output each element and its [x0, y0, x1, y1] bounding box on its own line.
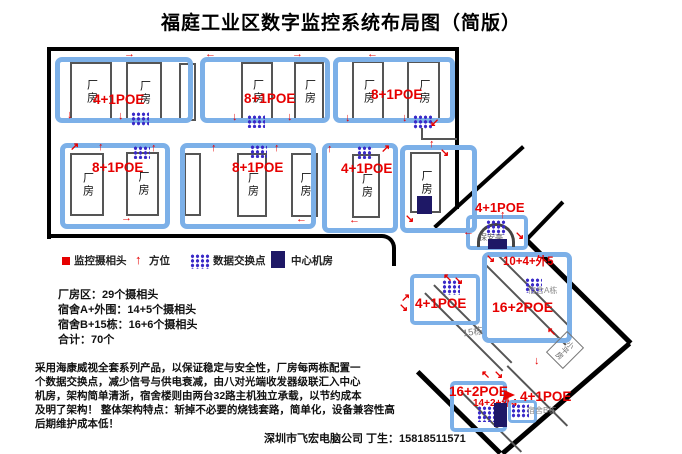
footer-contact: 深圳市飞宏电脑公司 丁生：15818511571 — [264, 430, 466, 446]
dorm-a-label: 宿舍A栋 — [528, 287, 557, 295]
center-room-icon — [494, 403, 507, 427]
direction-arrow-icon: ↑ — [151, 143, 157, 154]
direction-arrow-icon: ↑ — [500, 210, 506, 221]
direction-arrow-icon: ↘ — [494, 370, 503, 381]
small-house-label: 小平房 — [554, 339, 575, 360]
direction-arrow-icon: ↗ — [70, 142, 79, 153]
poe-label: 8+1POE — [92, 161, 143, 175]
description-line: 机房，架构简单清浙，宿舍楼则由两台32路主机独立承载，以节约成本 — [35, 389, 475, 403]
center-room-icon — [271, 251, 285, 268]
direction-arrow-icon: ↓ — [287, 112, 293, 123]
description-line: 后期维护成本低！ — [35, 417, 475, 431]
poe-group-row2-1 — [60, 143, 170, 229]
poe-label: 8+1POE — [232, 161, 283, 175]
layout-diagram: 福庭工业区数字监控系统布局图（简版） 厂房 厂房 厂房 厂房 厂房 厂房 厂房 … — [0, 0, 682, 454]
stats-line-total: 合计：70个 — [58, 335, 114, 346]
direction-arrow-icon: ↑ — [429, 139, 435, 150]
page-title: 福庭工业区数字监控系统布局图（简版） — [0, 8, 682, 35]
red-arrow-icon — [504, 390, 515, 400]
poe-label: 16+2POE — [492, 300, 553, 314]
direction-arrow-icon: ↘ — [405, 214, 414, 225]
description-line: 个数据交换点，减少信号与供电衰减，由八对光端收发器级联汇入中心 — [35, 375, 475, 389]
direction-arrow-icon: ↑ — [274, 143, 280, 154]
direction-arrow-icon: ↘ — [454, 276, 463, 287]
switch-node-icon — [247, 115, 265, 128]
direction-arrow-icon: ↘ — [440, 148, 449, 159]
direction-arrow-icon: ↖ — [547, 327, 556, 338]
switch-node-icon — [486, 220, 506, 235]
direction-arrow-icon: ↓ — [232, 112, 238, 123]
direction-arrow-icon: ↓ — [118, 111, 124, 122]
direction-arrow-icon: ← — [205, 49, 216, 60]
dorm-b-label: 宿舍B栋 — [527, 407, 556, 415]
legend-center-room-label: 中心机房 — [291, 256, 333, 267]
poe-label: 8+1POE — [371, 88, 422, 102]
direction-arrow-icon: ↑ — [211, 143, 217, 154]
switch-node-icon — [250, 145, 267, 158]
poe-group-row1-1 — [55, 57, 193, 123]
stats-line-dorm-b: 宿舍B+15栋：16+6个摄相头 — [58, 320, 197, 331]
direction-arrow-icon: ↓ — [534, 356, 540, 367]
poe-label: 4+1POE — [520, 390, 571, 404]
direction-arrow-icon: ↖ — [443, 273, 452, 284]
legend-switch-label: 数据交换点 — [213, 256, 266, 267]
switch-node-icon — [357, 146, 373, 159]
stats-line-dorm-a: 宿舍A+外围：14+5个摄相头 — [58, 305, 196, 316]
switch-node-icon — [131, 112, 149, 126]
direction-arrow-icon: → — [121, 213, 132, 224]
direction-arrow-icon: ↓ — [345, 113, 351, 124]
poe-label: 4+1POE — [93, 93, 144, 107]
legend-direction-label: 方位 — [149, 256, 170, 267]
direction-arrow-icon: ↗ — [381, 144, 390, 155]
center-room-icon — [488, 239, 507, 249]
direction-arrow-icon: ↘ — [399, 303, 408, 314]
poe-label: 4+1POE — [341, 162, 392, 176]
direction-arrow-icon: ↑ — [135, 253, 142, 266]
road-line — [525, 201, 565, 242]
description-line: 及明了架构！ 整体架构特点：斩掉不必要的烧钱套路，简单化，设备兼容性高 — [35, 403, 475, 417]
direction-arrow-icon: → — [292, 49, 303, 60]
factory-zone-border-bottom — [47, 234, 381, 238]
stats-line-factory: 厂房区：29个摄相头 — [58, 290, 158, 301]
description-line: 采用海康威视全套系列产品，以保证稳定与安全性，厂房每两栋配置一 — [35, 361, 475, 375]
direction-arrow-icon: → — [124, 49, 135, 60]
switch-node-icon — [133, 146, 150, 159]
switch-node-icon — [190, 254, 210, 269]
direction-arrow-icon: ↙ — [430, 118, 439, 129]
camera-icon — [62, 257, 70, 265]
direction-arrow-icon: ↓ — [67, 110, 73, 121]
direction-arrow-icon: ← — [296, 214, 307, 225]
direction-arrow-icon: ↘ — [486, 254, 495, 265]
direction-arrow-icon: ← — [463, 227, 474, 238]
poe-label: 4+1POE — [415, 297, 466, 311]
legend-camera-label: 监控摄相头 — [74, 256, 127, 267]
building-15-label: 15栋 — [462, 327, 483, 339]
direction-arrow-icon: ↘ — [515, 231, 524, 242]
cable-line — [421, 138, 457, 140]
direction-arrow-icon: ↑ — [327, 144, 333, 155]
factory-zone-border-top — [47, 47, 459, 51]
poe-group-row1-2 — [200, 57, 330, 123]
direction-arrow-icon: ↓ — [402, 113, 408, 124]
poe-label: 8+1POE — [244, 92, 295, 106]
direction-arrow-icon: ← — [349, 215, 360, 226]
direction-arrow-icon: ← — [367, 49, 378, 60]
description-block: 采用海康威视全套系列产品，以保证稳定与安全性，厂房每两栋配置一 个数据交换点，减… — [35, 361, 475, 431]
direction-arrow-icon: ↖ — [481, 370, 490, 381]
poe-label: 10+4+外5 — [503, 257, 554, 269]
factory-zone-border-left — [47, 47, 51, 239]
factory-zone-border-hook — [378, 234, 396, 266]
direction-arrow-icon: ↑ — [98, 142, 104, 153]
